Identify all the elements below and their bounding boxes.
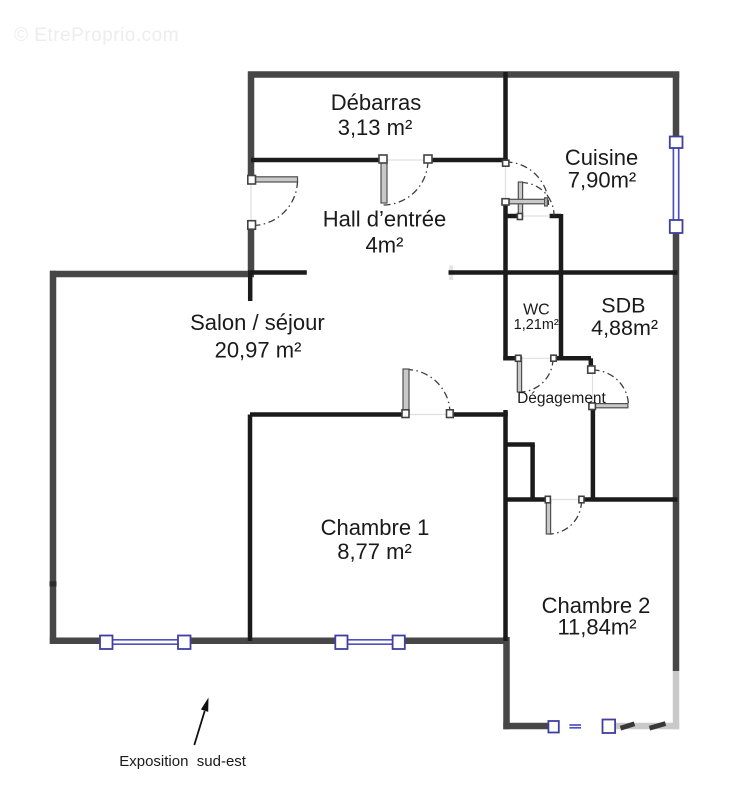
svg-text:Chambre 1: Chambre 1 <box>321 515 430 540</box>
svg-text:7,90m²: 7,90m² <box>568 168 636 193</box>
svg-text:Exposition sud-est: Exposition sud-est <box>119 753 247 770</box>
svg-text:11,84m²: 11,84m² <box>557 615 636 640</box>
svg-text:WC: WC <box>523 302 550 319</box>
svg-text:8,77 m²: 8,77 m² <box>337 539 412 564</box>
svg-text:20,97 m²: 20,97 m² <box>215 338 302 363</box>
svg-text:© EtreProprio.com: © EtreProprio.com <box>14 25 179 46</box>
svg-text:Dégagement: Dégagement <box>517 390 606 407</box>
svg-text:4,88m²: 4,88m² <box>591 316 658 340</box>
svg-text:4m²: 4m² <box>366 233 404 258</box>
svg-text:Débarras: Débarras <box>331 90 421 115</box>
svg-text:Hall d’entrée: Hall d’entrée <box>323 207 447 232</box>
svg-text:1,21m²: 1,21m² <box>514 317 559 333</box>
svg-text:Salon / séjour: Salon / séjour <box>190 310 325 335</box>
svg-text:3,13 m²: 3,13 m² <box>338 115 413 140</box>
svg-text:Cuisine: Cuisine <box>565 145 638 170</box>
svg-text:SDB: SDB <box>601 294 645 318</box>
